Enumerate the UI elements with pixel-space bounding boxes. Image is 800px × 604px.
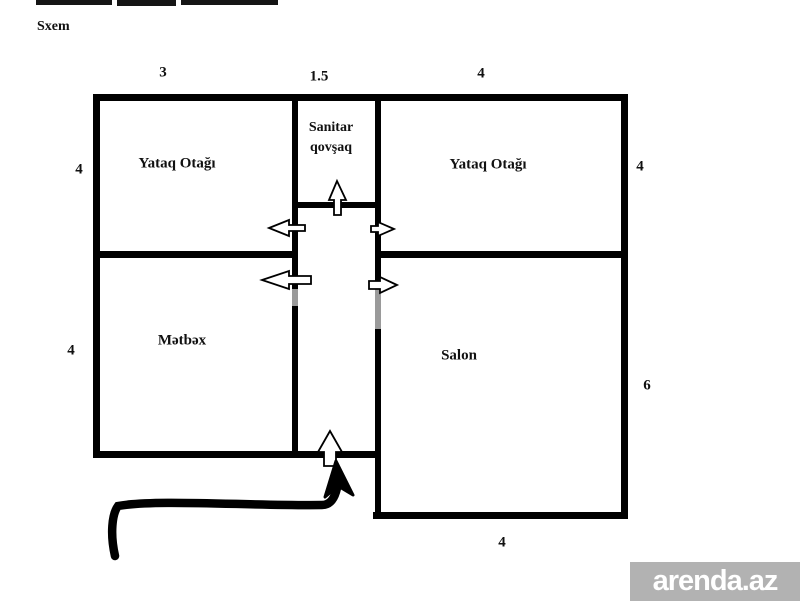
wall-faded-segment-left bbox=[292, 289, 298, 306]
up-arrow-icon-corridor bbox=[318, 431, 342, 466]
room-label-salon: Salon bbox=[441, 348, 477, 365]
right-arrow-icon-bedroom bbox=[371, 222, 394, 236]
right-arrow-icon-salon bbox=[369, 277, 397, 293]
dimension-top-left: 3 bbox=[159, 65, 167, 82]
dimension-left-lower: 4 bbox=[67, 343, 75, 360]
wall-outer-top bbox=[93, 94, 628, 101]
watermark-text: arenda.az bbox=[653, 565, 778, 598]
wall-faded-segment-right bbox=[375, 289, 381, 329]
room-label-sanitary-line1: Sanitar bbox=[309, 118, 353, 138]
wall-outer-left bbox=[93, 94, 100, 458]
wall-outer-right bbox=[621, 94, 628, 519]
left-arrow-icon-bedroom bbox=[269, 220, 305, 236]
room-label-kitchen: Mətbəx bbox=[158, 333, 206, 350]
dimension-right-lower: 6 bbox=[643, 378, 651, 395]
watermark-bar: arenda.az bbox=[630, 562, 800, 601]
room-label-sanitary-line2: qovşaq bbox=[309, 138, 353, 158]
wall-bedroom-right-bottom bbox=[375, 251, 628, 258]
dimension-top-middle: 1.5 bbox=[310, 69, 329, 86]
wall-bedroom-left-bottom bbox=[93, 251, 298, 258]
dimension-top-right: 4 bbox=[477, 66, 485, 83]
room-label-bedroom-right: Yataq Otağı bbox=[449, 157, 526, 174]
dimension-bottom: 4 bbox=[498, 535, 506, 552]
dimension-left-upper: 4 bbox=[75, 162, 83, 179]
floor-plan-canvas: Sxem bbox=[0, 0, 800, 604]
room-label-bedroom-left: Yataq Otağı bbox=[138, 156, 215, 173]
hand-drawn-arrow-icon bbox=[112, 461, 353, 556]
floor-plan-drawing bbox=[0, 0, 800, 604]
left-arrow-icon-kitchen bbox=[262, 271, 311, 289]
up-arrow-icon-sanitary bbox=[329, 181, 346, 215]
room-label-sanitary: Sanitar qovşaq bbox=[309, 118, 353, 158]
wall-salon-bottom bbox=[373, 512, 628, 519]
dimension-right-upper: 4 bbox=[636, 159, 644, 176]
